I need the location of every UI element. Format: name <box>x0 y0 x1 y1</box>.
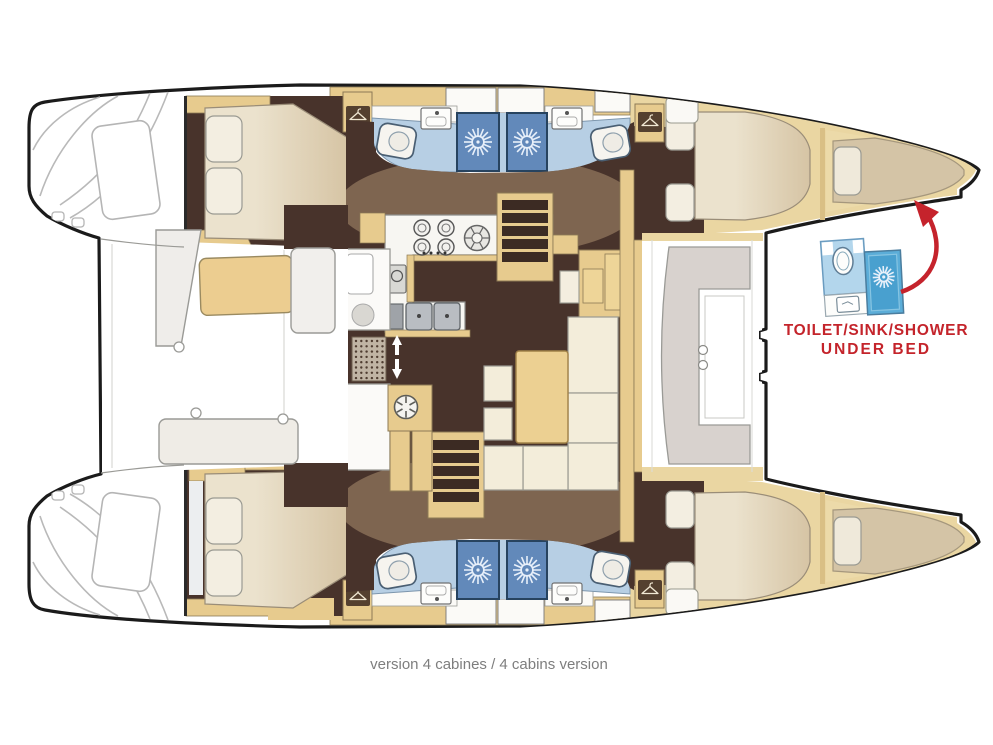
svg-text:version 4 cabines / 4 cabins v: version 4 cabines / 4 cabins version <box>370 656 608 673</box>
svg-text:TOILET/SINK/SHOWER: TOILET/SINK/SHOWER <box>784 322 969 339</box>
svg-text:UNDER BED: UNDER BED <box>821 341 931 358</box>
